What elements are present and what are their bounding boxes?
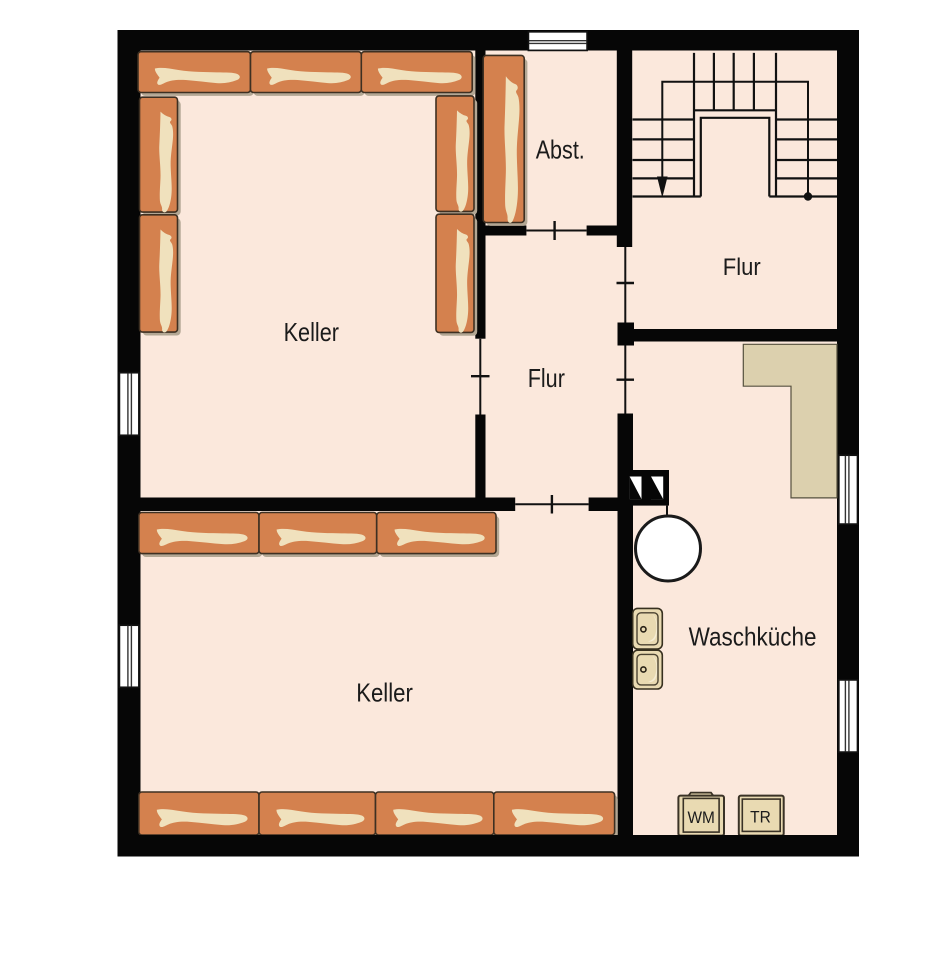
svg-text:Keller: Keller [356, 678, 413, 708]
svg-text:TR: TR [750, 808, 771, 826]
svg-text:Keller: Keller [284, 317, 340, 347]
svg-text:Abst.: Abst. [536, 135, 585, 165]
svg-text:Waschküche: Waschküche [689, 622, 817, 652]
svg-text:Flur: Flur [723, 254, 761, 281]
svg-text:Flur: Flur [528, 363, 565, 393]
svg-text:WM: WM [688, 809, 715, 827]
